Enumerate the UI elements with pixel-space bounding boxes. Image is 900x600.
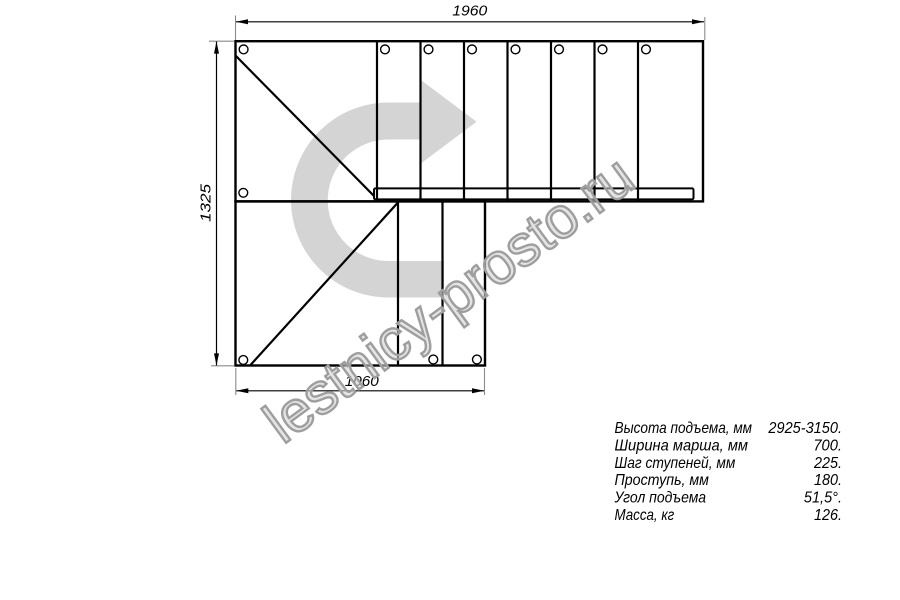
svg-text:180.: 180. [814,472,842,489]
svg-text:1960: 1960 [452,3,487,19]
svg-text:Ширина марша, мм: Ширина марша, мм [615,438,749,455]
svg-text:126.: 126. [814,507,842,524]
svg-text:Угол подъема: Угол подъема [614,490,707,507]
svg-text:225.: 225. [813,455,842,472]
svg-text:Высота подъема, мм: Высота подъема, мм [615,420,753,437]
svg-text:1325: 1325 [199,184,215,222]
svg-text:2925-3150.: 2925-3150. [767,420,842,437]
svg-text:Масса, кг: Масса, кг [615,507,675,524]
svg-text:Шаг ступеней, мм: Шаг ступеней, мм [615,455,736,472]
svg-text:Проступь, мм: Проступь, мм [615,472,710,489]
svg-text:700.: 700. [813,438,842,455]
svg-text:51,5°.: 51,5°. [804,490,842,507]
